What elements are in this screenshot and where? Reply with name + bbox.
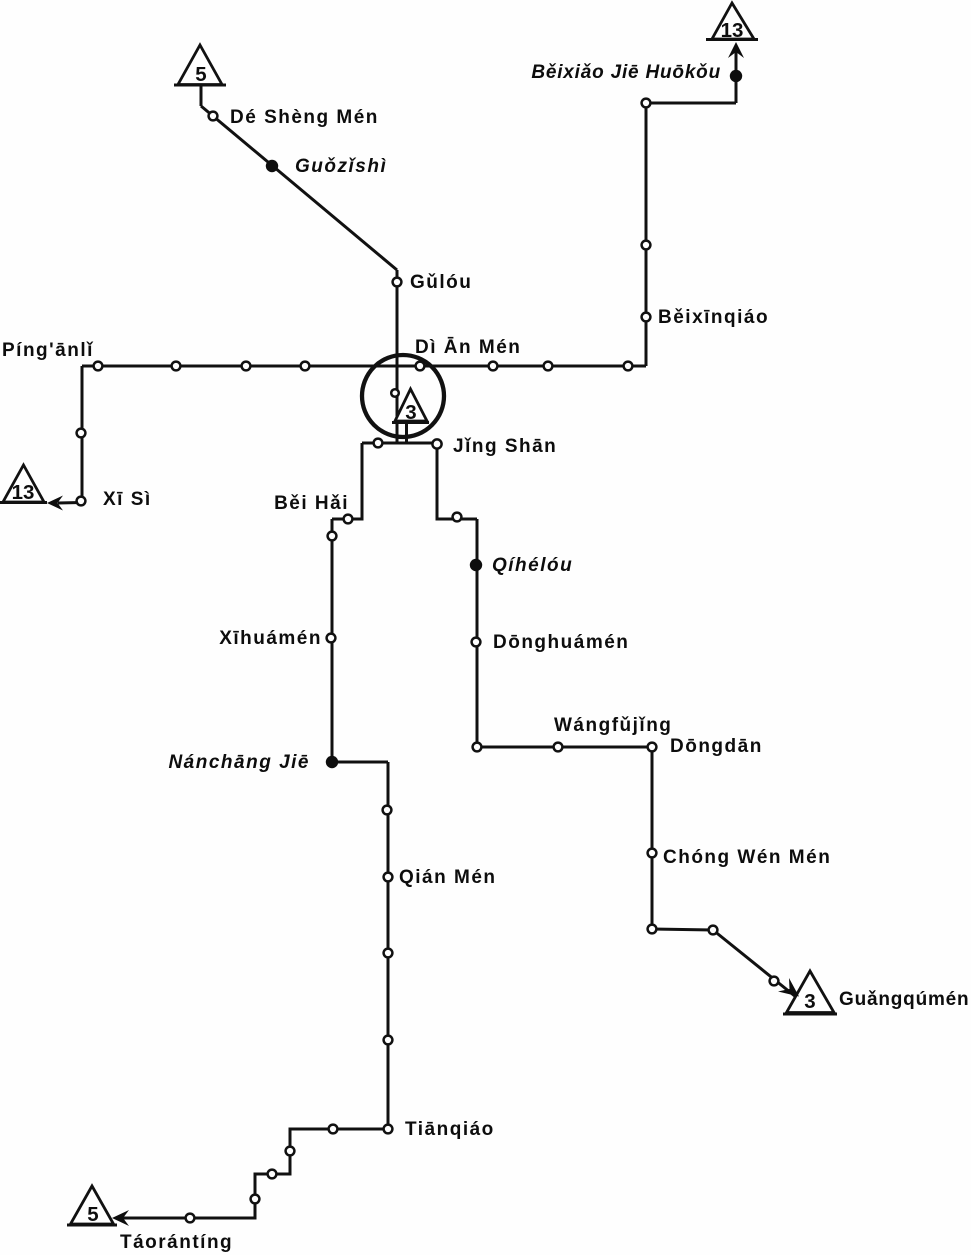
svg-text:Dōnghuámén: Dōnghuámén [493, 632, 629, 653]
svg-text:Tiānqiáo: Tiānqiáo [405, 1119, 495, 1140]
svg-text:Jǐng Shān: Jǐng Shān [453, 436, 557, 457]
svg-text:3: 3 [804, 990, 815, 1013]
svg-text:13: 13 [12, 481, 35, 504]
svg-text:Gǔlóu: Gǔlóu [410, 272, 472, 293]
svg-text:13: 13 [721, 19, 744, 42]
svg-text:Běi Hǎi: Běi Hǎi [274, 493, 349, 514]
svg-text:5: 5 [87, 1203, 98, 1226]
svg-text:Guǒzǐshì: Guǒzǐshì [295, 156, 387, 177]
svg-text:3: 3 [405, 401, 416, 424]
svg-text:Qián Mén: Qián Mén [399, 867, 497, 888]
svg-text:Píng'ānlǐ: Píng'ānlǐ [2, 340, 94, 361]
svg-text:Dōngdān: Dōngdān [670, 736, 763, 757]
svg-text:Xī Sì: Xī Sì [103, 489, 152, 510]
svg-text:Chóng Wén Mén: Chóng Wén Mén [663, 847, 831, 868]
svg-text:5: 5 [195, 63, 206, 86]
svg-text:Táorántíng: Táorántíng [120, 1232, 233, 1253]
svg-text:Dé Shèng Mén: Dé Shèng Mén [230, 107, 379, 128]
svg-text:Dì Ān Mén: Dì Ān Mén [415, 337, 521, 358]
svg-text:Běixiǎo Jiē Huōkǒu: Běixiǎo Jiē Huōkǒu [531, 62, 721, 83]
svg-text:Xīhuámén: Xīhuámén [219, 628, 322, 649]
svg-text:Guǎngqúmén: Guǎngqúmén [839, 989, 969, 1010]
svg-text:Nánchāng Jiē: Nánchāng Jiē [168, 752, 310, 773]
svg-text:Běixīnqiáo: Běixīnqiáo [658, 307, 769, 328]
svg-text:Wángfǔjǐng: Wángfǔjǐng [554, 715, 672, 736]
svg-text:Qíhélóu: Qíhélóu [492, 555, 573, 576]
